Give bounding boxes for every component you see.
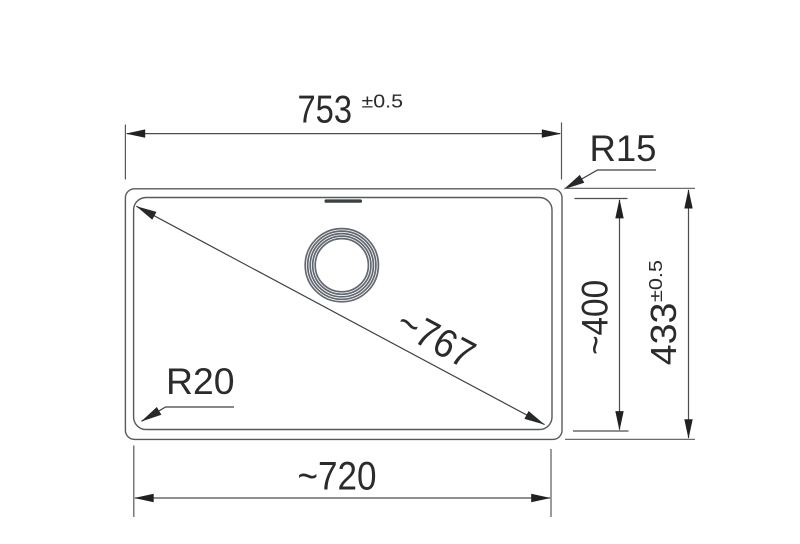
svg-text:R15: R15 — [590, 128, 657, 169]
svg-text:±0.5: ±0.5 — [362, 91, 404, 111]
svg-text:433: 433 — [643, 303, 684, 366]
svg-text:±0.5: ±0.5 — [645, 260, 666, 302]
svg-text:753: 753 — [298, 89, 353, 132]
svg-text:R20: R20 — [166, 361, 235, 402]
svg-text:~720: ~720 — [298, 454, 377, 498]
svg-text:~400: ~400 — [575, 280, 616, 355]
